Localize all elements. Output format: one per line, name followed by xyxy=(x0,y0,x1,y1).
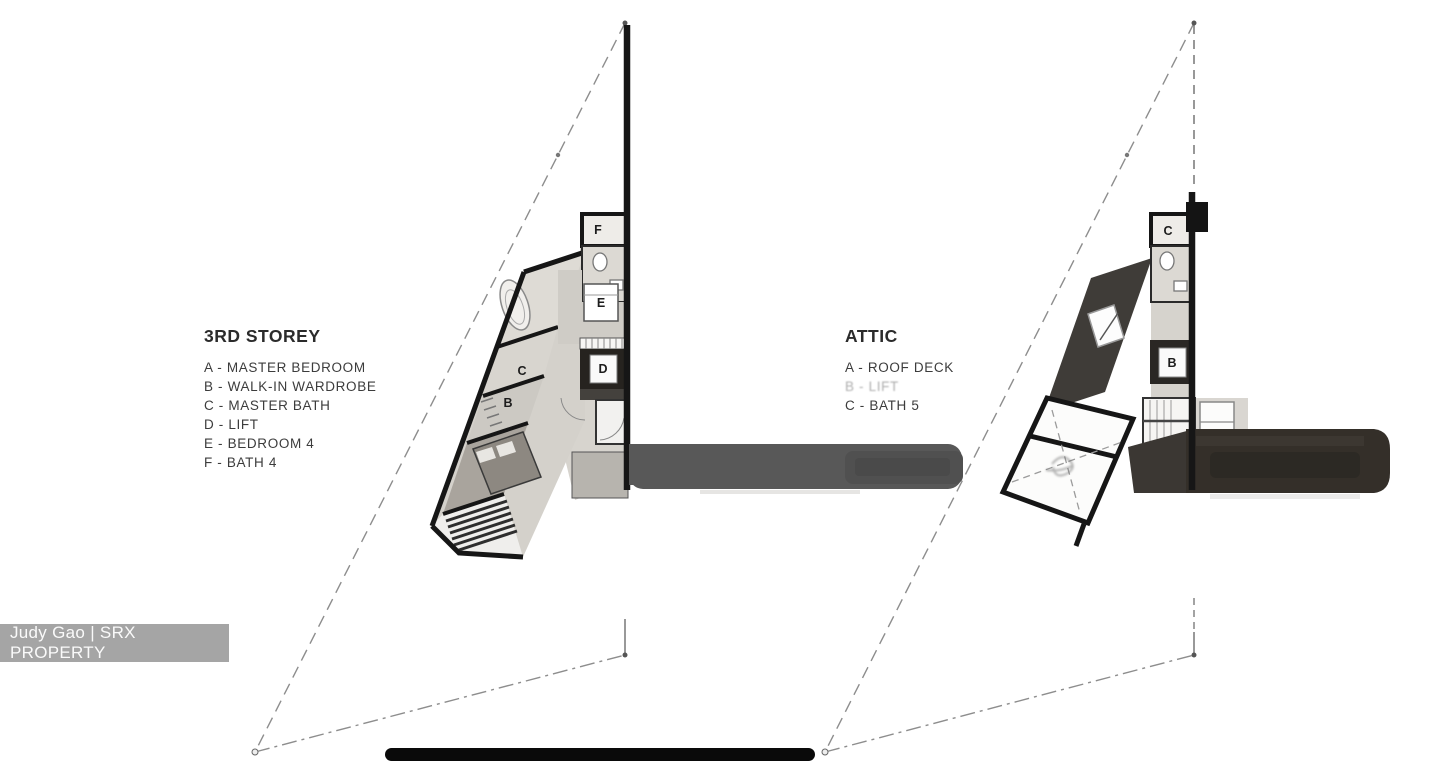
room-label-b: B xyxy=(1167,356,1176,370)
attic-roof-bar xyxy=(1186,429,1390,499)
watermark-badge: Judy Gao | SRX PROPERTY xyxy=(0,624,229,662)
legend-item-a: A - ROOF DECK xyxy=(845,358,954,377)
room-label-c: C xyxy=(1163,224,1172,238)
room-label-c: C xyxy=(517,364,526,378)
legend-item-b: B - WALK-IN WARDROBE xyxy=(204,377,377,396)
toilet xyxy=(1160,252,1174,270)
legend-items: A - ROOF DECK B - LIFT C - BATH 5 xyxy=(845,358,954,415)
bath4-room xyxy=(582,214,628,246)
watermark-text: Judy Gao | SRX PROPERTY xyxy=(10,623,229,663)
survey-marker xyxy=(623,21,628,26)
boundary-line-south xyxy=(255,655,625,752)
bar-highlight xyxy=(1196,436,1364,446)
attic-plan: C B xyxy=(1003,192,1390,546)
survey-marker xyxy=(1192,21,1197,26)
survey-marker xyxy=(822,749,828,755)
survey-marker xyxy=(623,653,628,658)
room-label-e: E xyxy=(597,296,605,310)
legend-item-b-obscured: B - LIFT xyxy=(845,377,954,396)
legend-item-c: C - MASTER BATH xyxy=(204,396,377,415)
legend-title: ATTIC xyxy=(845,326,954,347)
room-label-b: B xyxy=(503,396,512,410)
arm-shadow xyxy=(700,490,860,494)
legend-3rd-storey: 3RD STOREY A - MASTER BEDROOM B - WALK-I… xyxy=(204,326,377,472)
floorplan-canvas: F E D C B xyxy=(0,0,1440,765)
room-label-f: F xyxy=(594,223,602,237)
legend-item-c: C - BATH 5 xyxy=(845,396,954,415)
boundary-line-south xyxy=(825,655,1194,752)
bar-emboss xyxy=(1210,452,1360,478)
legend-item-e: E - BEDROOM 4 xyxy=(204,434,377,453)
legend-item-d: D - LIFT xyxy=(204,415,377,434)
scale-bar xyxy=(385,748,815,761)
third-storey-plan: F E D C B xyxy=(432,25,963,557)
planter-block xyxy=(572,452,628,498)
survey-marker xyxy=(1125,153,1129,157)
toilet xyxy=(593,253,607,271)
sink xyxy=(1174,281,1187,291)
bar-shadow xyxy=(1210,494,1360,499)
roof-terrace-arm xyxy=(629,444,963,494)
wall-cap xyxy=(1186,202,1208,232)
survey-marker xyxy=(1192,653,1197,658)
legend-item-f: F - BATH 4 xyxy=(204,453,377,472)
survey-marker xyxy=(252,749,258,755)
roof-deck xyxy=(1003,398,1133,546)
room-label-d: D xyxy=(598,362,607,376)
survey-marker xyxy=(556,153,560,157)
legend-title: 3RD STOREY xyxy=(204,326,377,347)
hall-room xyxy=(596,400,626,444)
deck-stub-wall xyxy=(1076,524,1084,546)
service-strip xyxy=(580,389,628,400)
legend-items: A - MASTER BEDROOM B - WALK-IN WARDROBE … xyxy=(204,358,377,472)
legend-item-a: A - MASTER BEDROOM xyxy=(204,358,377,377)
arm-emboss-dark xyxy=(855,458,950,476)
legend-attic: ATTIC A - ROOF DECK B - LIFT C - BATH 5 xyxy=(845,326,954,415)
